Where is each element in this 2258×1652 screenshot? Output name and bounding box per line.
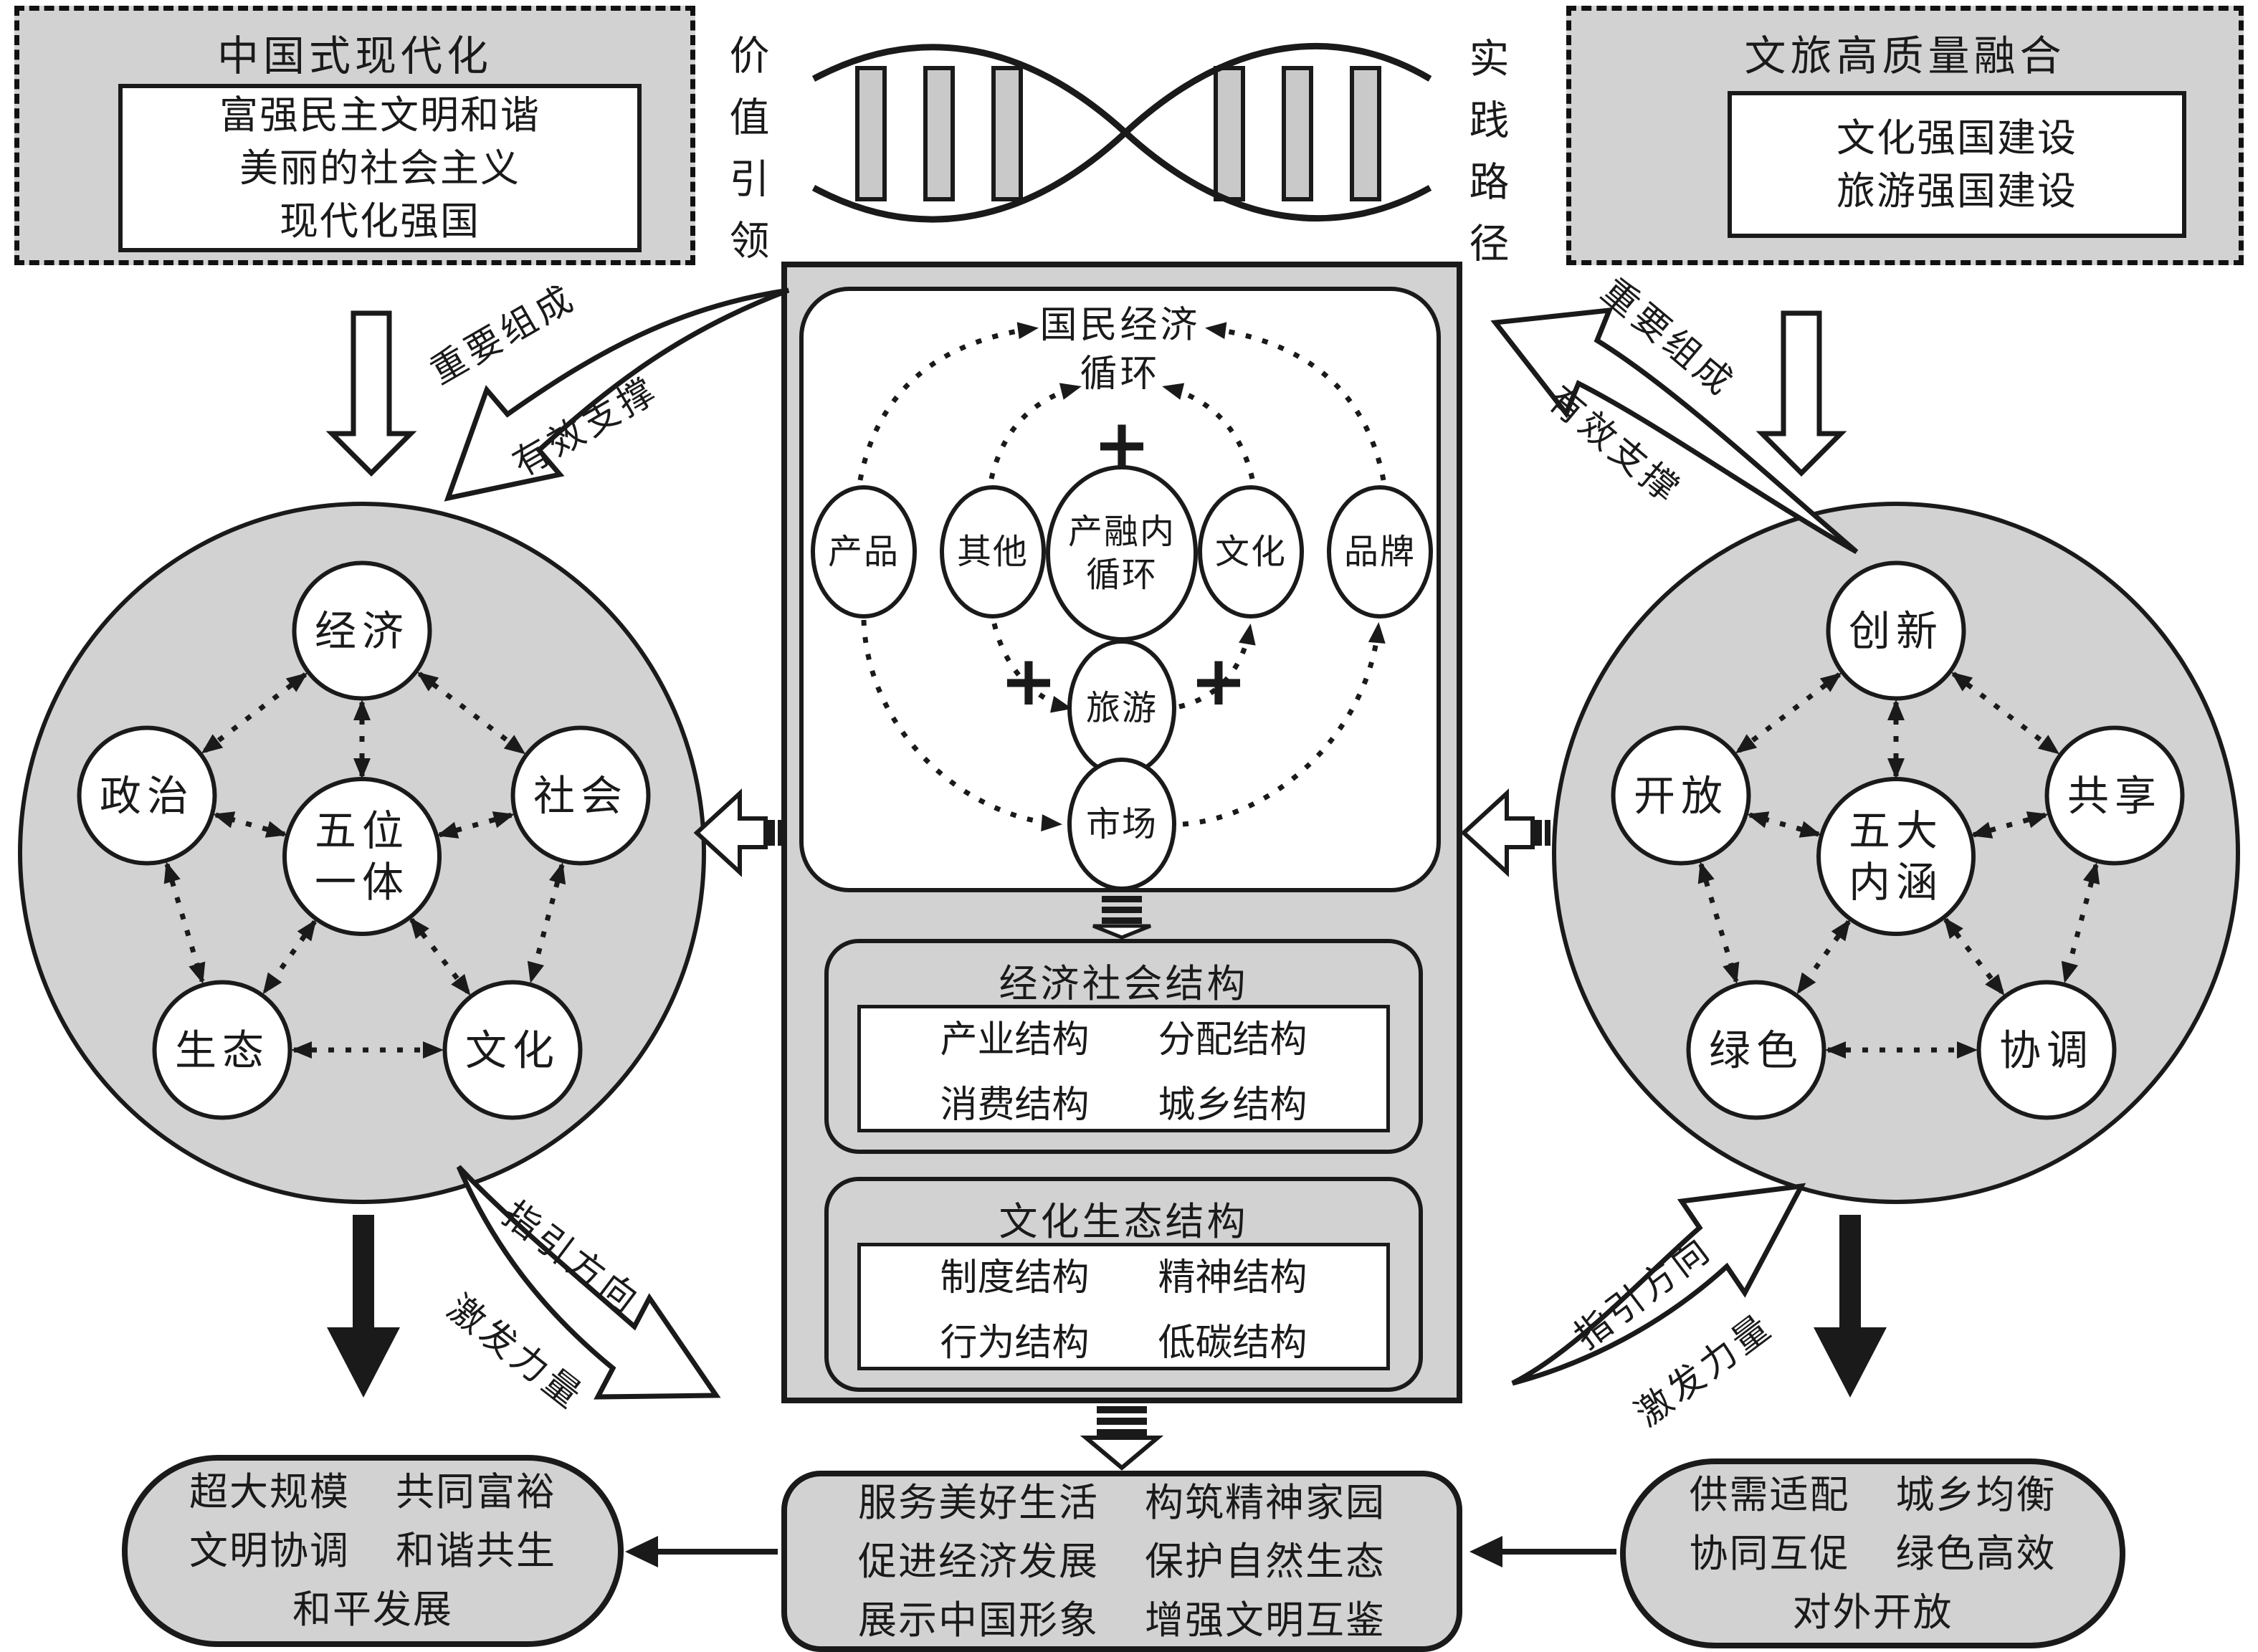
label-effective-support-right: 有效支撑: [1538, 371, 1695, 514]
node-label: 绿色: [1709, 1024, 1804, 1076]
cycle-node-tourism: 旅游: [1067, 639, 1176, 777]
capsule-item: 构筑精神家园: [1145, 1474, 1386, 1532]
capsule-item: 增强文明互鉴: [1145, 1591, 1386, 1650]
structure-item: 消费结构: [940, 1074, 1089, 1128]
cycle-node-label: 其他: [957, 530, 1029, 573]
content-line: 现代化强国: [280, 195, 480, 248]
structure-item: 精神结构: [1158, 1247, 1307, 1301]
left-node-ecology: 生态: [153, 980, 292, 1120]
cycle-title: 国民经济 循环: [799, 301, 1441, 398]
pin-arrow-into-left-circle: [697, 793, 783, 872]
practice-path-label: 实践路径: [1457, 37, 1515, 284]
capsule-item: 协同互促: [1690, 1524, 1850, 1583]
capsule-item: 保护自然生态: [1145, 1532, 1386, 1591]
economic-social-structure-box: 经济社会结构 产业结构 分配结构 消费结构 城乡结构: [824, 939, 1423, 1154]
cycle-node-label: 循环: [1086, 553, 1158, 596]
plus-icon: +: [1000, 641, 1057, 721]
left-center-node: 五位 一体: [282, 777, 442, 936]
content-line: 旅游强国建设: [1837, 165, 2077, 218]
capsule-item: 城乡均衡: [1896, 1466, 2057, 1524]
structure-item: 低碳结构: [1158, 1312, 1307, 1366]
node-label: 内涵: [1849, 856, 1943, 908]
right-center-node: 五大 内涵: [1816, 777, 1976, 936]
cycle-node-core: 产融内 循环: [1046, 465, 1198, 641]
solid-down-arrow-right: [1814, 1215, 1887, 1398]
node-label: 政治: [100, 770, 194, 821]
cycle-node-label: 品牌: [1344, 530, 1416, 573]
label-effective-support-left: 有效支撑: [502, 362, 667, 487]
left-node-society: 社会: [511, 726, 651, 866]
cultural-ecological-structure-box: 文化生态结构 制度结构 精神结构 行为结构 低碳结构: [824, 1177, 1423, 1392]
cycle-node-other: 其他: [940, 485, 1046, 619]
node-label: 文化: [465, 1024, 560, 1076]
left-node-economy: 经济: [292, 561, 432, 701]
content-line: 富强民主文明和谐: [219, 89, 540, 142]
node-label: 协调: [1999, 1024, 2094, 1076]
cycle-node-product: 产品: [811, 485, 917, 619]
solid-down-arrow-left: [327, 1215, 400, 1398]
node-label: 开放: [1634, 770, 1728, 821]
structure-item: 分配结构: [1158, 1009, 1307, 1063]
label-important-component-left: 重要组成: [419, 269, 584, 394]
dna-helix-icon: [814, 46, 1430, 219]
arrow-center-to-left-capsule: [625, 1536, 778, 1567]
label-inspire-power-left: 激发力量: [439, 1281, 597, 1421]
node-label: 经济: [315, 605, 409, 656]
cycle-node-label: 市场: [1086, 803, 1158, 846]
cycle-node-label: 旅游: [1086, 687, 1158, 730]
pin-arrow-into-central-box: [1464, 793, 1550, 872]
chinese-modernization-title: 中国式现代化: [19, 22, 690, 82]
right-node-coordination: 协调: [1977, 980, 2117, 1120]
capsule-item: 展示中国形象: [858, 1591, 1099, 1650]
right-node-sharing: 共享: [2045, 726, 2185, 866]
capsule-item: 和平发展: [292, 1580, 453, 1639]
economic-social-structure-items: 产业结构 分配结构 消费结构 城乡结构: [857, 1005, 1390, 1132]
content-line: 文化强国建设: [1837, 112, 2077, 165]
node-label: 社会: [533, 770, 628, 821]
cycle-title-line: 国民经济: [799, 301, 1441, 350]
node-label: 共享: [2067, 770, 2162, 821]
capsule-item: 文明协调: [189, 1522, 350, 1580]
capsule-item: 供需适配: [1690, 1466, 1850, 1524]
structure-item: 制度结构: [940, 1247, 1089, 1301]
right-node-green: 绿色: [1687, 980, 1826, 1120]
arrow-right-to-center-capsule: [1469, 1536, 1616, 1567]
culture-tourism-integration-box: 文旅高质量融合 文化强国建设 旅游强国建设: [1566, 6, 2244, 265]
right-node-openness: 开放: [1611, 726, 1751, 866]
cycle-node-label: 产融内: [1068, 510, 1176, 553]
node-label: 创新: [1849, 605, 1943, 656]
structure-item: 行为结构: [940, 1312, 1089, 1366]
structure-item: 产业结构: [940, 1009, 1089, 1063]
cycle-node-label: 文化: [1215, 530, 1287, 573]
hollow-down-arrow-left: [332, 313, 411, 473]
striped-down-arrow-lower: [1086, 1406, 1158, 1468]
node-label: 生态: [175, 1024, 270, 1076]
plus-icon: +: [1093, 404, 1151, 484]
mission-capsule: 服务美好生活 构筑精神家园 促进经济发展 保护自然生态 展示中国形象 增强文明互…: [781, 1471, 1462, 1652]
capsule-item: 促进经济发展: [858, 1532, 1099, 1591]
label-important-component-right: 重要组成: [1592, 264, 1748, 406]
chinese-modernization-box: 中国式现代化 富强民主文明和谐 美丽的社会主义 现代化强国: [14, 6, 695, 265]
right-node-innovation: 创新: [1826, 561, 1966, 701]
cycle-node-market: 市场: [1067, 758, 1176, 891]
development-goals-capsule: 供需适配 城乡均衡 协同互促 绿色高效 对外开放: [1620, 1458, 2125, 1648]
culture-tourism-integration-title: 文旅高质量融合: [1571, 22, 2239, 82]
value-guidance-label: 价值引领: [717, 34, 775, 281]
left-node-politics: 政治: [77, 726, 217, 866]
capsule-item: 对外开放: [1793, 1583, 1953, 1642]
economic-social-structure-title: 经济社会结构: [829, 952, 1419, 1008]
structure-item: 城乡结构: [1158, 1074, 1307, 1128]
node-label: 五位: [315, 805, 409, 856]
capsule-item: 共同富裕: [396, 1463, 556, 1522]
node-label: 五大: [1849, 805, 1943, 856]
chinese-modernization-content: 富强民主文明和谐 美丽的社会主义 现代化强国: [118, 84, 642, 252]
cycle-node-culture: 文化: [1198, 485, 1304, 619]
cultural-ecological-structure-items: 制度结构 精神结构 行为结构 低碳结构: [857, 1243, 1390, 1370]
plus-icon: +: [1190, 641, 1247, 721]
label-inspire-power-right: 激发力量: [1623, 1299, 1782, 1436]
capsule-item: 服务美好生活: [858, 1474, 1099, 1532]
content-line: 美丽的社会主义: [239, 142, 520, 195]
capsule-item: 超大规模: [189, 1463, 350, 1522]
diagram-canvas: 中国式现代化 富强民主文明和谐 美丽的社会主义 现代化强国 文旅高质量融合 文化…: [0, 0, 2258, 1652]
capsule-item: 绿色高效: [1896, 1524, 2057, 1583]
cycle-node-label: 产品: [828, 530, 900, 573]
cultural-ecological-structure-title: 文化生态结构: [829, 1190, 1419, 1246]
node-label: 一体: [315, 856, 409, 908]
culture-tourism-integration-content: 文化强国建设 旅游强国建设: [1728, 91, 2186, 238]
cycle-node-brand: 品牌: [1327, 485, 1433, 619]
modernization-features-capsule: 超大规模 共同富裕 文明协调 和谐共生 和平发展: [122, 1455, 624, 1647]
label-guide-direction-left: 指引方向: [494, 1187, 653, 1324]
hollow-down-arrow-right: [1762, 313, 1841, 473]
left-node-culture: 文化: [443, 980, 583, 1120]
cycle-title-line: 循环: [799, 350, 1441, 398]
capsule-item: 和谐共生: [396, 1522, 556, 1580]
